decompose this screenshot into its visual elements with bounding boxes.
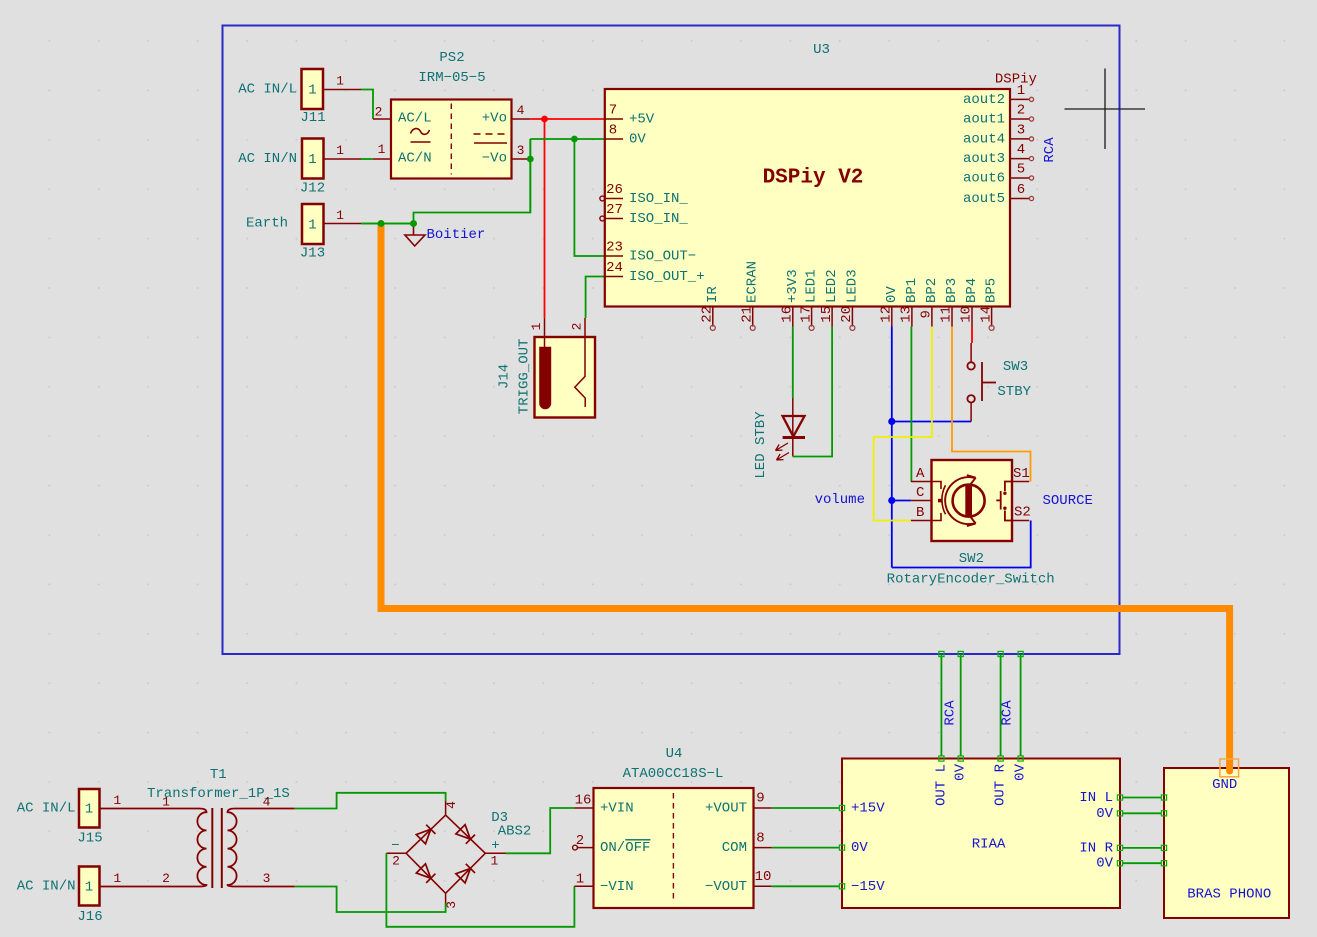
svg-text:A: A	[916, 466, 925, 482]
svg-text:1: 1	[113, 871, 121, 886]
svg-text:IN R: IN R	[1079, 840, 1113, 856]
svg-text:B: B	[916, 505, 924, 521]
svg-text:RCA: RCA	[1042, 137, 1058, 163]
svg-text:3: 3	[444, 901, 459, 909]
svg-text:9: 9	[919, 310, 935, 318]
svg-text:4: 4	[1017, 142, 1025, 158]
svg-text:0V: 0V	[953, 763, 969, 780]
svg-text:BP2: BP2	[924, 278, 940, 303]
svg-text:15: 15	[819, 306, 835, 323]
svg-text:DSPiy V2: DSPiy V2	[763, 167, 864, 190]
svg-text:21: 21	[739, 306, 755, 323]
svg-text:IN L: IN L	[1079, 790, 1113, 806]
svg-text:16: 16	[780, 306, 796, 323]
svg-text:+Vo: +Vo	[482, 111, 507, 127]
svg-text:ISO_IN_: ISO_IN_	[629, 191, 688, 207]
svg-text:SOURCE: SOURCE	[1043, 493, 1093, 509]
svg-text:20: 20	[839, 306, 855, 323]
svg-text:+VOUT: +VOUT	[705, 801, 747, 817]
svg-text:17: 17	[798, 306, 814, 323]
svg-text:IR: IR	[705, 286, 721, 303]
svg-text:BRAS PHONO: BRAS PHONO	[1187, 887, 1271, 903]
svg-text:U3: U3	[813, 42, 830, 58]
svg-text:11: 11	[939, 306, 955, 323]
svg-text:BP3: BP3	[944, 278, 960, 303]
svg-text:0V: 0V	[851, 840, 868, 856]
svg-text:10: 10	[959, 306, 975, 323]
svg-text:AC/L: AC/L	[398, 111, 432, 127]
svg-text:2: 2	[1017, 103, 1025, 119]
svg-text:−VIN: −VIN	[600, 879, 634, 895]
svg-text:OUT R: OUT R	[993, 763, 1009, 806]
svg-text:C: C	[916, 485, 924, 501]
svg-text:volume: volume	[815, 492, 865, 508]
svg-text:1: 1	[113, 793, 121, 808]
svg-text:aout2: aout2	[963, 92, 1005, 108]
svg-text:2: 2	[576, 833, 584, 849]
svg-text:1: 1	[308, 152, 316, 168]
svg-text:+: +	[491, 838, 499, 854]
svg-text:1: 1	[529, 322, 544, 330]
svg-text:1: 1	[336, 74, 344, 89]
svg-text:−: −	[391, 838, 399, 854]
svg-text:−Vo: −Vo	[482, 151, 507, 167]
svg-text:aout1: aout1	[963, 112, 1005, 128]
svg-text:ON/OFF: ON/OFF	[600, 840, 650, 856]
svg-text:LED2: LED2	[824, 269, 840, 303]
svg-text:J16: J16	[77, 909, 102, 925]
svg-text:2: 2	[162, 871, 170, 886]
svg-text:14: 14	[978, 306, 994, 323]
svg-text:LED STBY: LED STBY	[753, 411, 769, 479]
svg-text:IRM−05−5: IRM−05−5	[418, 70, 485, 86]
svg-text:AC IN/L: AC IN/L	[17, 801, 76, 817]
svg-text:22: 22	[700, 306, 716, 323]
svg-text:J13: J13	[300, 246, 325, 262]
svg-text:LED3: LED3	[844, 269, 860, 303]
svg-text:ISO_IN_: ISO_IN_	[629, 211, 688, 227]
svg-text:2: 2	[392, 854, 400, 869]
svg-text:5: 5	[1017, 162, 1025, 178]
svg-text:7: 7	[609, 103, 617, 119]
svg-text:4: 4	[517, 103, 525, 118]
svg-text:13: 13	[899, 306, 915, 323]
svg-text:SW2: SW2	[959, 551, 984, 567]
svg-text:2: 2	[375, 105, 383, 120]
svg-text:6: 6	[1017, 182, 1025, 198]
svg-text:Boitier: Boitier	[427, 227, 486, 243]
svg-text:J12: J12	[300, 181, 325, 197]
svg-text:BP1: BP1	[904, 278, 920, 303]
svg-text:PS2: PS2	[439, 50, 464, 66]
svg-text:3: 3	[517, 143, 525, 158]
svg-text:T1: T1	[210, 767, 227, 783]
svg-text:1: 1	[336, 208, 344, 223]
svg-text:STBY: STBY	[997, 384, 1031, 400]
svg-text:ISO_OUT_+: ISO_OUT_+	[629, 269, 705, 285]
svg-text:+3V3: +3V3	[785, 269, 801, 303]
svg-text:DSPiy: DSPiy	[995, 72, 1037, 88]
svg-text:2: 2	[570, 323, 585, 331]
svg-text:ABS2: ABS2	[498, 824, 532, 840]
svg-text:RCA: RCA	[943, 700, 959, 726]
svg-text:TRIGG_OUT: TRIGG_OUT	[517, 339, 533, 415]
svg-text:+15V: +15V	[851, 801, 885, 817]
svg-text:1: 1	[162, 795, 170, 810]
svg-text:27: 27	[606, 202, 623, 218]
svg-text:RCA: RCA	[1000, 700, 1016, 726]
svg-text:J15: J15	[77, 831, 102, 847]
svg-text:LED1: LED1	[804, 269, 820, 303]
svg-text:S1: S1	[1013, 466, 1030, 482]
svg-text:aout6: aout6	[963, 171, 1005, 187]
svg-text:0V: 0V	[884, 286, 900, 303]
svg-text:1: 1	[336, 143, 344, 158]
svg-text:OUT L: OUT L	[933, 764, 949, 806]
svg-text:SW3: SW3	[1003, 359, 1028, 375]
svg-text:RIAA: RIAA	[972, 837, 1006, 853]
svg-text:8: 8	[609, 123, 617, 139]
svg-text:+5V: +5V	[629, 112, 655, 128]
svg-text:−VOUT: −VOUT	[705, 879, 747, 895]
svg-text:1: 1	[308, 83, 316, 99]
svg-text:ATA00CC18S−L: ATA00CC18S−L	[623, 766, 724, 782]
svg-text:1: 1	[490, 854, 498, 869]
svg-text:4: 4	[263, 795, 271, 810]
svg-text:0V: 0V	[629, 132, 646, 148]
svg-text:RotaryEncoder_Switch: RotaryEncoder_Switch	[887, 571, 1055, 587]
svg-text:AC/N: AC/N	[398, 151, 432, 167]
svg-text:BP5: BP5	[984, 278, 1000, 303]
svg-text:BP4: BP4	[964, 278, 980, 303]
svg-text:4: 4	[444, 801, 459, 809]
svg-text:0V: 0V	[1013, 763, 1029, 780]
svg-text:aout3: aout3	[963, 151, 1005, 167]
svg-text:+VIN: +VIN	[600, 801, 634, 817]
svg-text:23: 23	[606, 240, 623, 256]
svg-text:GND: GND	[1212, 777, 1237, 793]
svg-text:3: 3	[263, 871, 271, 886]
svg-text:J14: J14	[497, 364, 513, 389]
svg-text:ISO_OUT−: ISO_OUT−	[629, 249, 696, 265]
svg-text:1: 1	[308, 218, 316, 234]
svg-text:0V: 0V	[1096, 806, 1113, 822]
svg-text:ECRAN: ECRAN	[745, 261, 761, 303]
svg-text:1: 1	[85, 802, 93, 818]
svg-text:COM: COM	[722, 840, 747, 856]
svg-text:1: 1	[378, 142, 386, 157]
svg-text:3: 3	[1017, 123, 1025, 139]
svg-text:Earth: Earth	[246, 216, 288, 232]
svg-text:U4: U4	[666, 746, 683, 762]
svg-text:J11: J11	[300, 110, 325, 126]
svg-text:0V: 0V	[1096, 856, 1113, 872]
svg-text:26: 26	[606, 182, 623, 198]
svg-text:AC IN/N: AC IN/N	[17, 879, 76, 895]
svg-text:24: 24	[606, 260, 623, 276]
svg-text:10: 10	[755, 869, 772, 885]
svg-text:aout4: aout4	[963, 131, 1005, 147]
svg-text:aout5: aout5	[963, 191, 1005, 207]
svg-text:8: 8	[756, 831, 764, 847]
svg-text:9: 9	[756, 790, 764, 806]
svg-text:−15V: −15V	[851, 879, 885, 895]
svg-text:12: 12	[879, 306, 895, 323]
svg-text:16: 16	[575, 793, 592, 809]
svg-text:AC IN/N: AC IN/N	[238, 151, 297, 167]
svg-text:S2: S2	[1014, 505, 1031, 521]
svg-text:1: 1	[85, 880, 93, 896]
svg-text:AC IN/L: AC IN/L	[238, 82, 297, 98]
svg-text:1: 1	[576, 871, 584, 887]
